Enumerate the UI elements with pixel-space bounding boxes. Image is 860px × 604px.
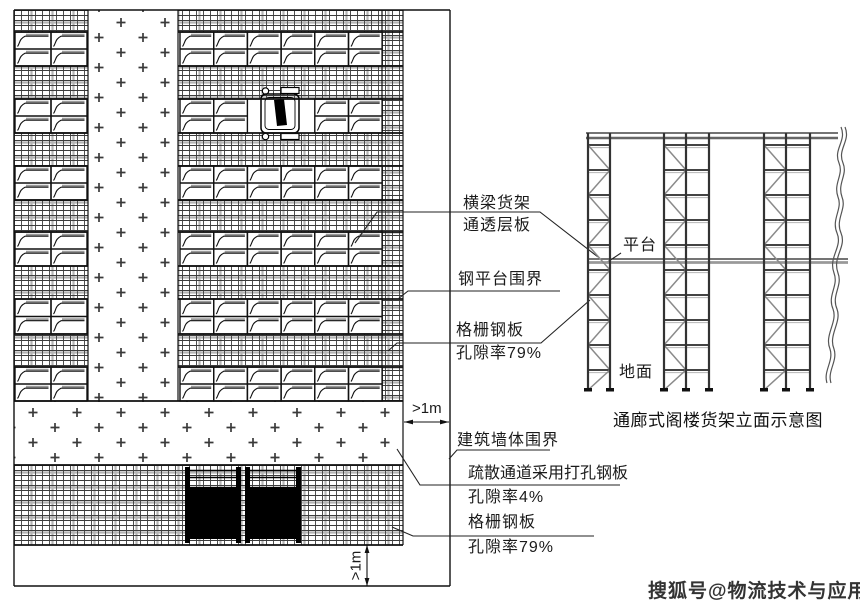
right-grating-column [382,10,403,401]
leader-wall [449,450,550,459]
plan-and-elevation-drawing [0,0,860,604]
grating-strips [14,10,403,367]
bottom-walkway-hatch [14,401,403,465]
leader-steel-platform [398,291,560,299]
callout-evac-line2: 孔隙率4% [468,490,544,506]
callout-grating-lower-line2: 孔隙率79% [468,540,554,556]
break-line-2 [830,127,846,383]
callout-grating-lower-line1: 格栅钢板 [468,515,536,531]
warehouse-cad-sheet: 横梁货架 通透层板 钢平台围界 格栅钢板 孔隙率79% 建筑墙体围界 疏散通道采… [0,0,860,604]
callout-evac-line1: 疏散通道采用打孔钢板 [468,466,628,482]
callout-steel-platform: 钢平台围界 [458,272,543,288]
callout-wall: 建筑墙体围界 [457,433,559,449]
callout-grating-upper-line1: 格栅钢板 [456,323,524,339]
break-line [826,127,842,383]
dim-bottom-clearance-label: >1m [349,548,364,584]
elevation-caption: 通廊式阁楼货架立面示意图 [613,406,823,431]
elevation-platform-label: 平台 [623,238,657,254]
elevation-view [584,127,848,392]
callout-beam-rack-line1: 横梁货架 [463,196,531,212]
callout-beam-rack-line2: 通透层板 [463,218,531,234]
callout-grating-upper-line2: 孔隙率79% [456,346,542,362]
dimension-vertical [365,545,370,586]
dimension-horizontal [404,420,449,425]
plan-view [14,10,450,586]
watermark-text: 搜狐号@物流技术与应用 [648,576,860,603]
dim-side-clearance-label: >1m [412,401,442,416]
elevation-ground-label: 地面 [619,365,653,381]
central-aisle-hatch [88,10,178,401]
elevation-top-chord [586,133,838,138]
